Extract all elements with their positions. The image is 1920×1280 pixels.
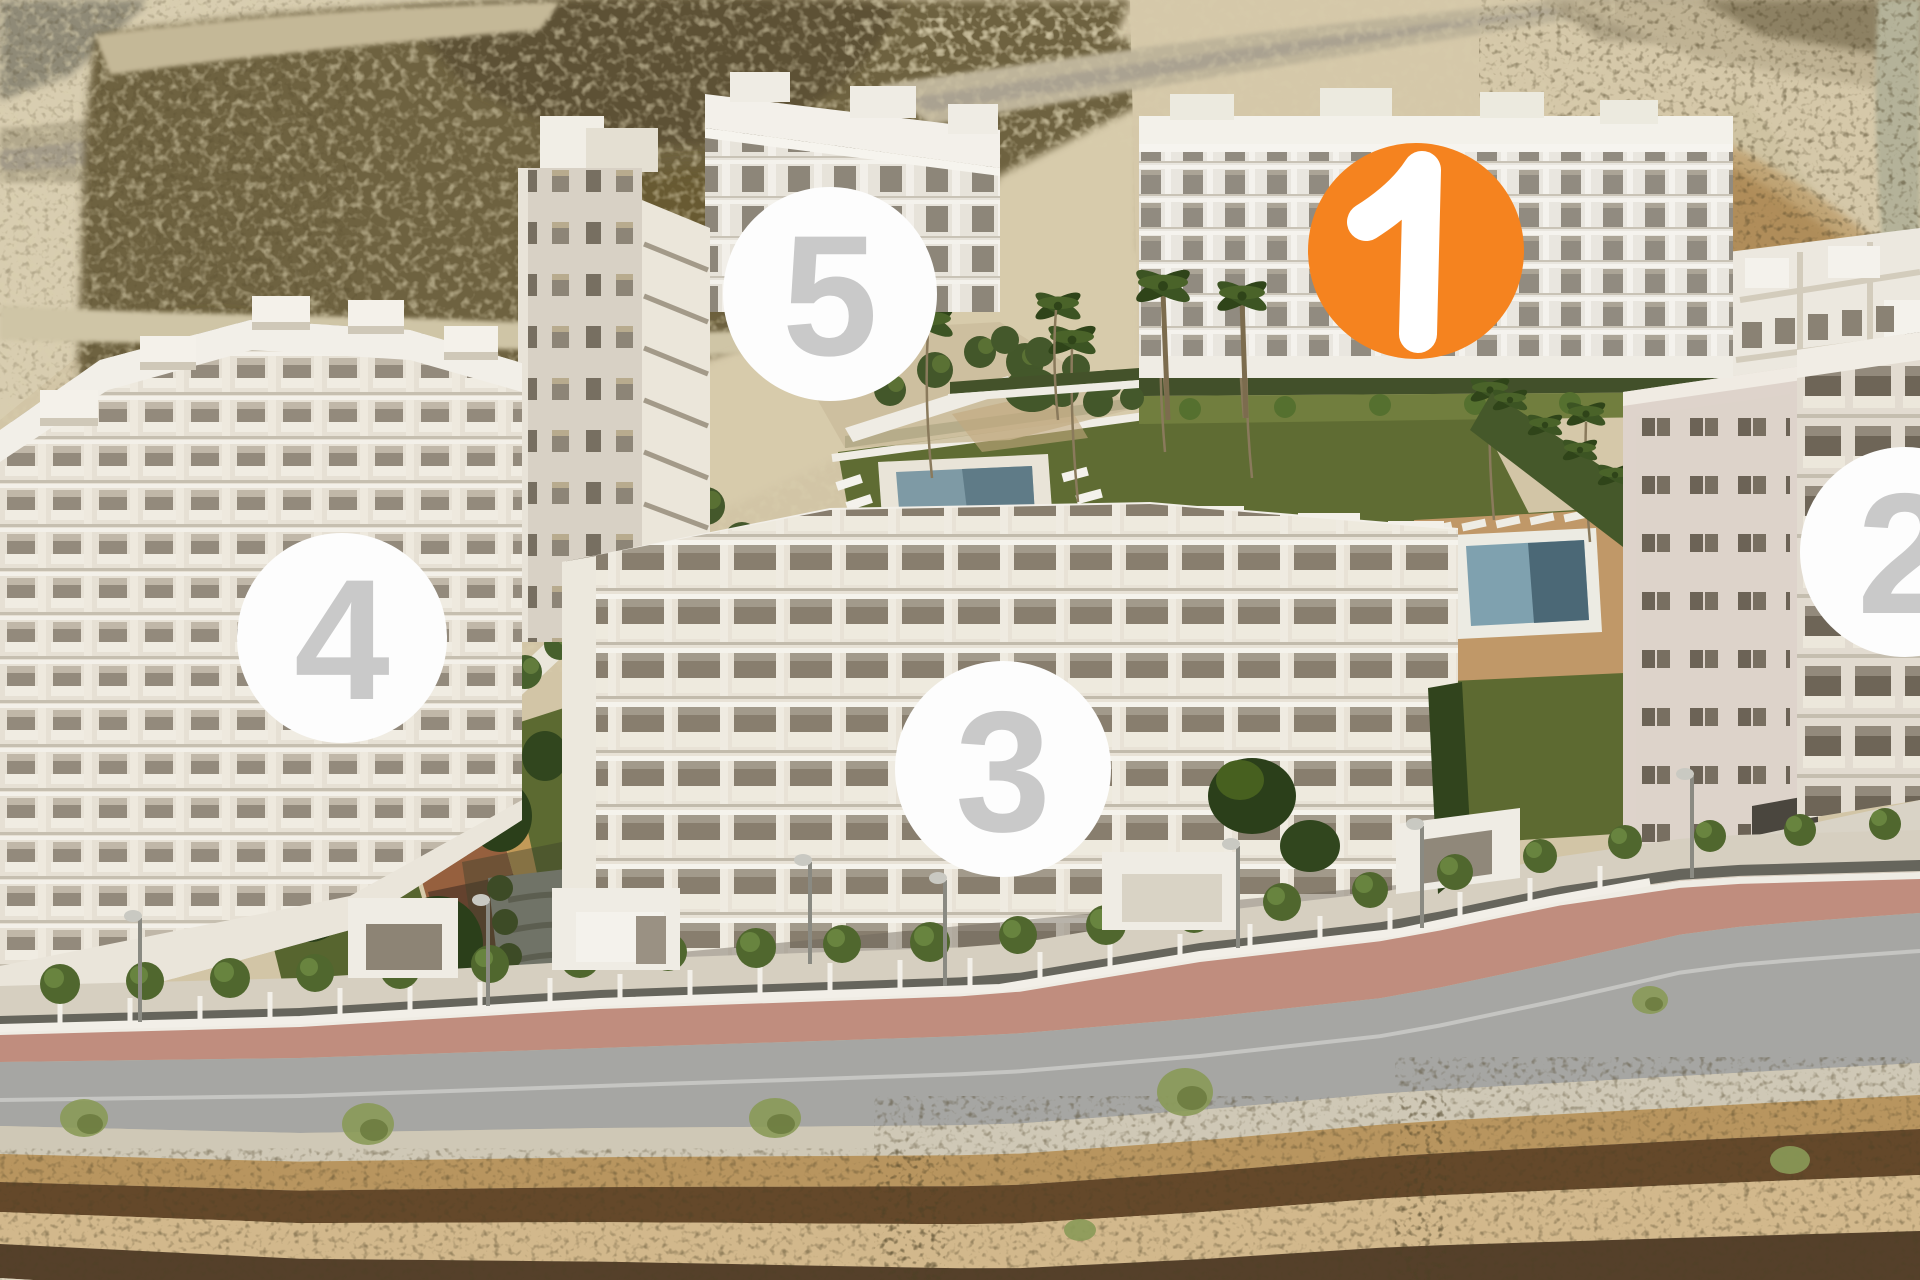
svg-text:3: 3 xyxy=(955,676,1051,868)
svg-text:5: 5 xyxy=(782,200,878,392)
svg-text:2: 2 xyxy=(1857,458,1920,650)
svg-text:4: 4 xyxy=(294,544,390,736)
